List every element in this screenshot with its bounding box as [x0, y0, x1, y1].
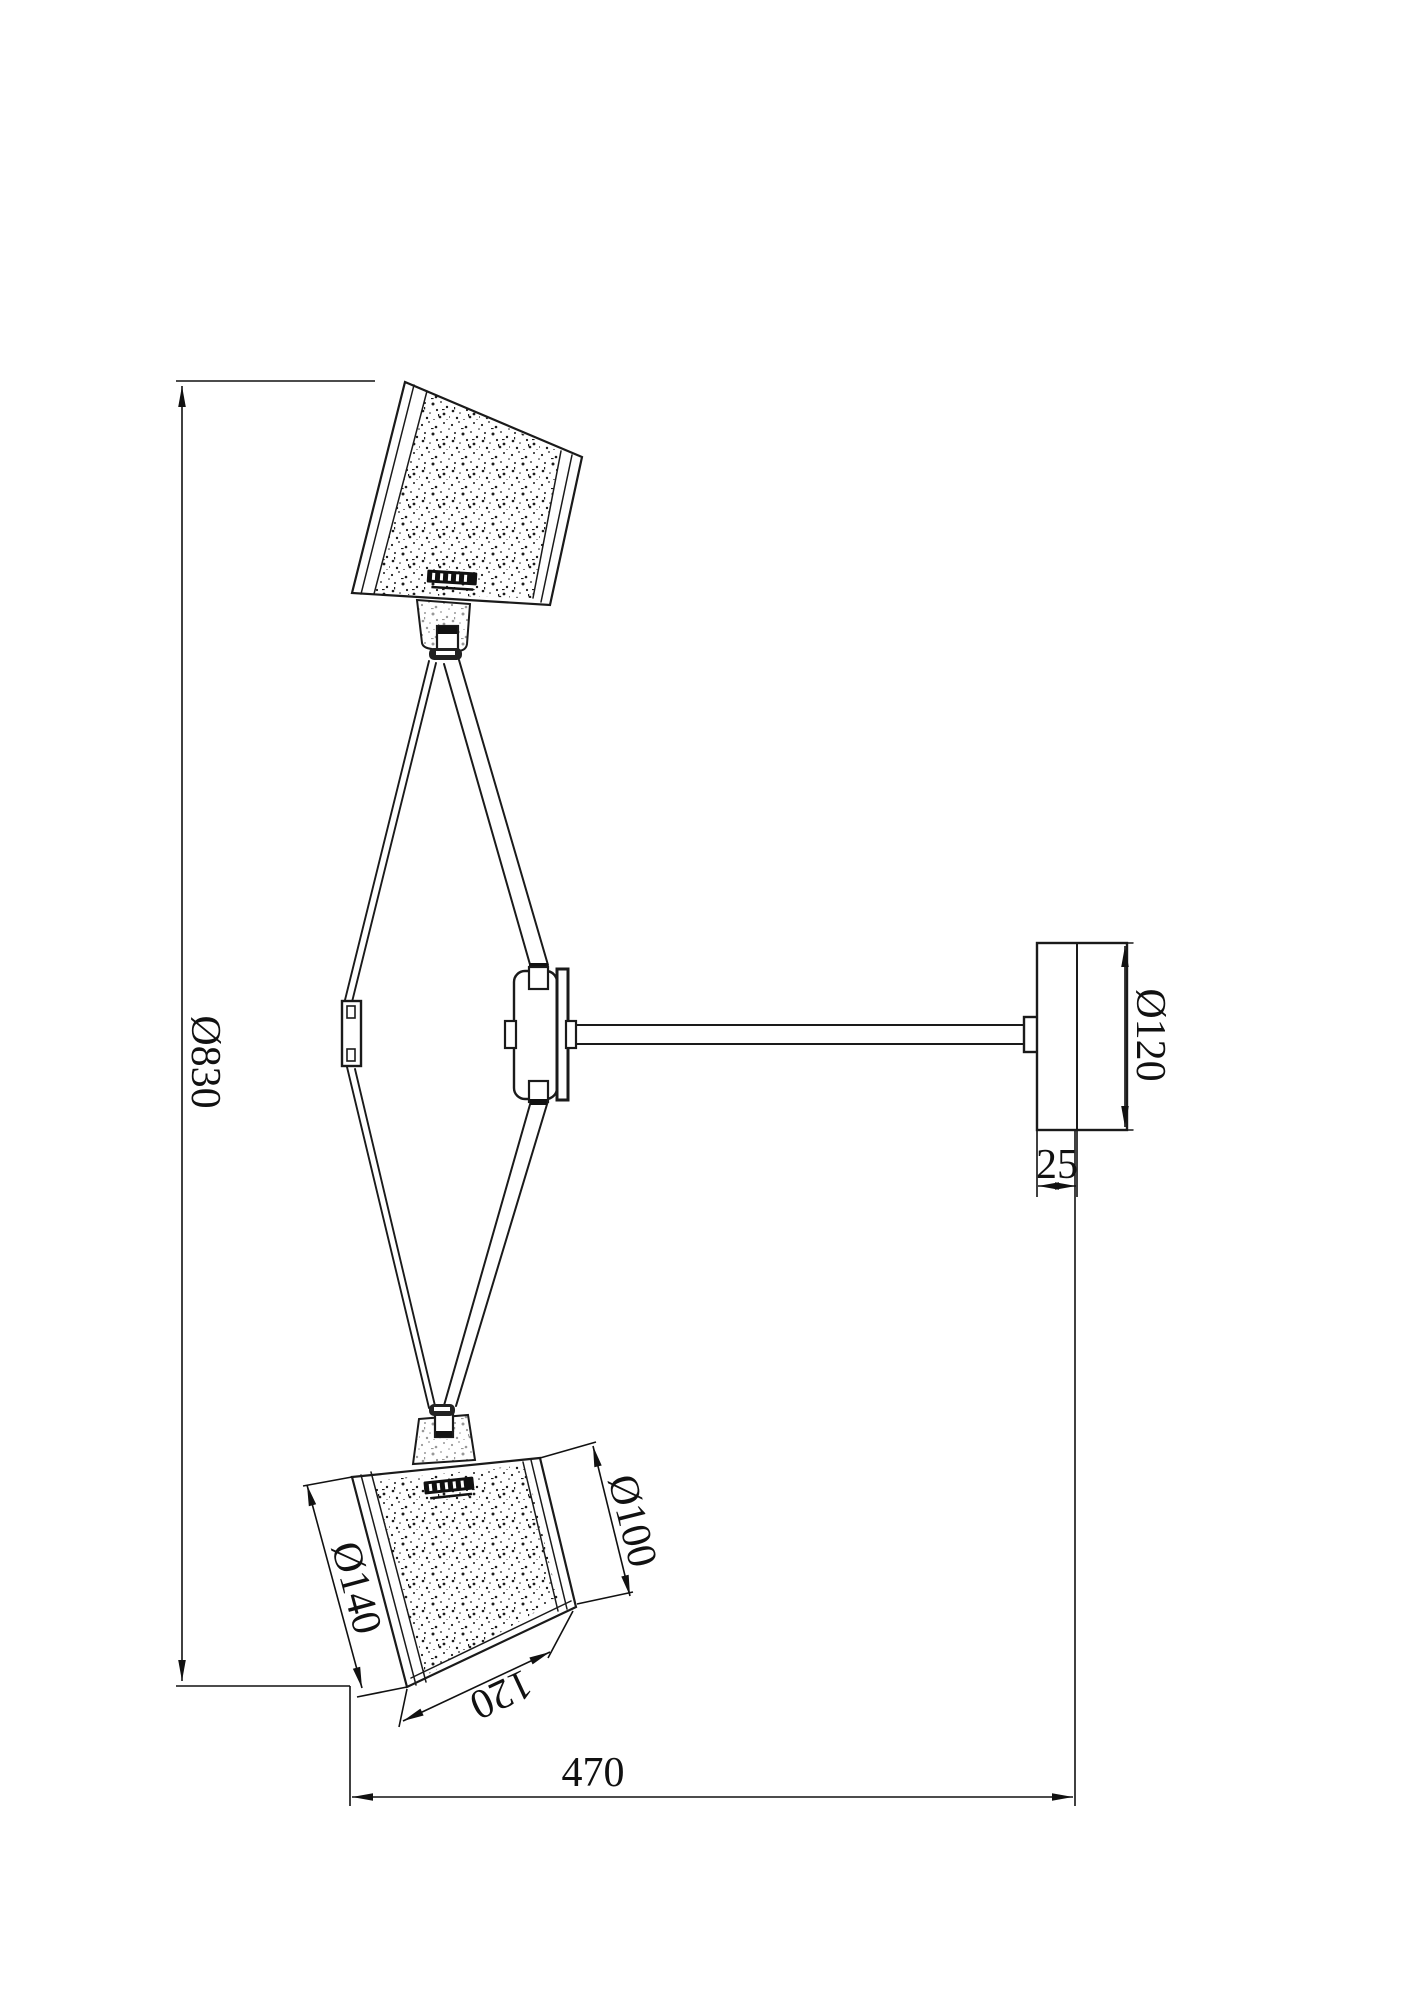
dim-label-shade-height: 120	[463, 1660, 540, 1728]
lamp-fixture	[342, 382, 1133, 1687]
wall-mount-plate	[1037, 943, 1133, 1130]
dimension-lines	[176, 381, 1125, 1806]
dim-label-plate-thickness: 25	[1036, 1142, 1078, 1188]
wall-arm-rod	[576, 1025, 1026, 1044]
top-shade	[352, 382, 582, 605]
drawing-page: Ø830 Ø120 25 470 Ø140 Ø100 120	[0, 0, 1414, 2000]
extension-line	[303, 1477, 352, 1486]
dimension-labels: Ø830 Ø120 25 470 Ø140 Ø100 120	[182, 988, 1173, 1796]
dim-label-overall-height: Ø830	[182, 1015, 228, 1108]
upper-left-arm	[345, 661, 436, 1002]
lower-right-arm	[443, 1101, 548, 1409]
extension-line	[540, 1442, 596, 1458]
extension-line	[577, 1592, 633, 1604]
lower-left-arm	[347, 1067, 436, 1410]
dim-label-shade-top-diameter: Ø100	[598, 1470, 665, 1572]
left-pivot-bracket	[342, 1001, 361, 1066]
extension-line	[399, 1689, 407, 1727]
bottom-shade	[352, 1458, 576, 1687]
extension-line	[357, 1687, 407, 1697]
central-bracket	[505, 963, 576, 1105]
dim-label-plate-diameter: Ø120	[1127, 988, 1173, 1081]
rod-hub	[566, 1021, 576, 1048]
lamp-technical-drawing: Ø830 Ø120 25 470 Ø140 Ø100 120	[0, 0, 1414, 2000]
left-knob	[505, 1021, 516, 1048]
upper-right-arm	[444, 660, 548, 968]
bottom-shade-neck	[413, 1404, 475, 1464]
top-shade-neck	[417, 600, 470, 660]
dim-label-projection: 470	[562, 1750, 625, 1796]
